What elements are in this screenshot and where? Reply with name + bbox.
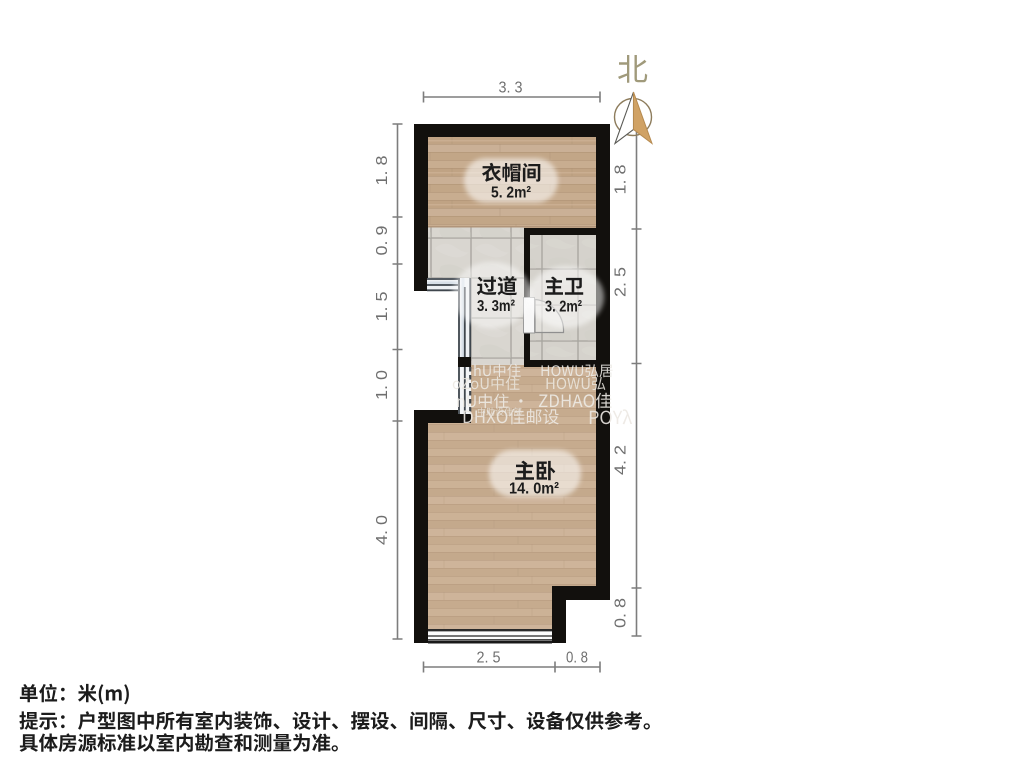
svg-text:0. 9: 0. 9 [374, 226, 391, 256]
svg-text:2. 5: 2. 5 [613, 267, 630, 297]
svg-text:0. 8: 0. 8 [613, 598, 630, 628]
svg-text:5. 2m²: 5. 2m² [491, 185, 531, 202]
svg-text:14. 0m²: 14. 0m² [509, 481, 559, 498]
svg-text:1. 5: 1. 5 [374, 292, 391, 322]
svg-text:1. 8: 1. 8 [613, 165, 630, 195]
svg-text:4. 2: 4. 2 [613, 445, 630, 475]
svg-text:3. 3m²: 3. 3m² [477, 298, 515, 315]
svg-text:3. 2m²: 3. 2m² [545, 299, 582, 316]
svg-text:1. 8: 1. 8 [374, 156, 391, 186]
svg-text:3. 3: 3. 3 [499, 80, 523, 97]
svg-text:0. 8: 0. 8 [566, 650, 588, 667]
svg-text:2. 5: 2. 5 [477, 650, 501, 667]
svg-text:1. 0: 1. 0 [374, 370, 391, 400]
svg-text:4. 0: 4. 0 [374, 515, 391, 545]
